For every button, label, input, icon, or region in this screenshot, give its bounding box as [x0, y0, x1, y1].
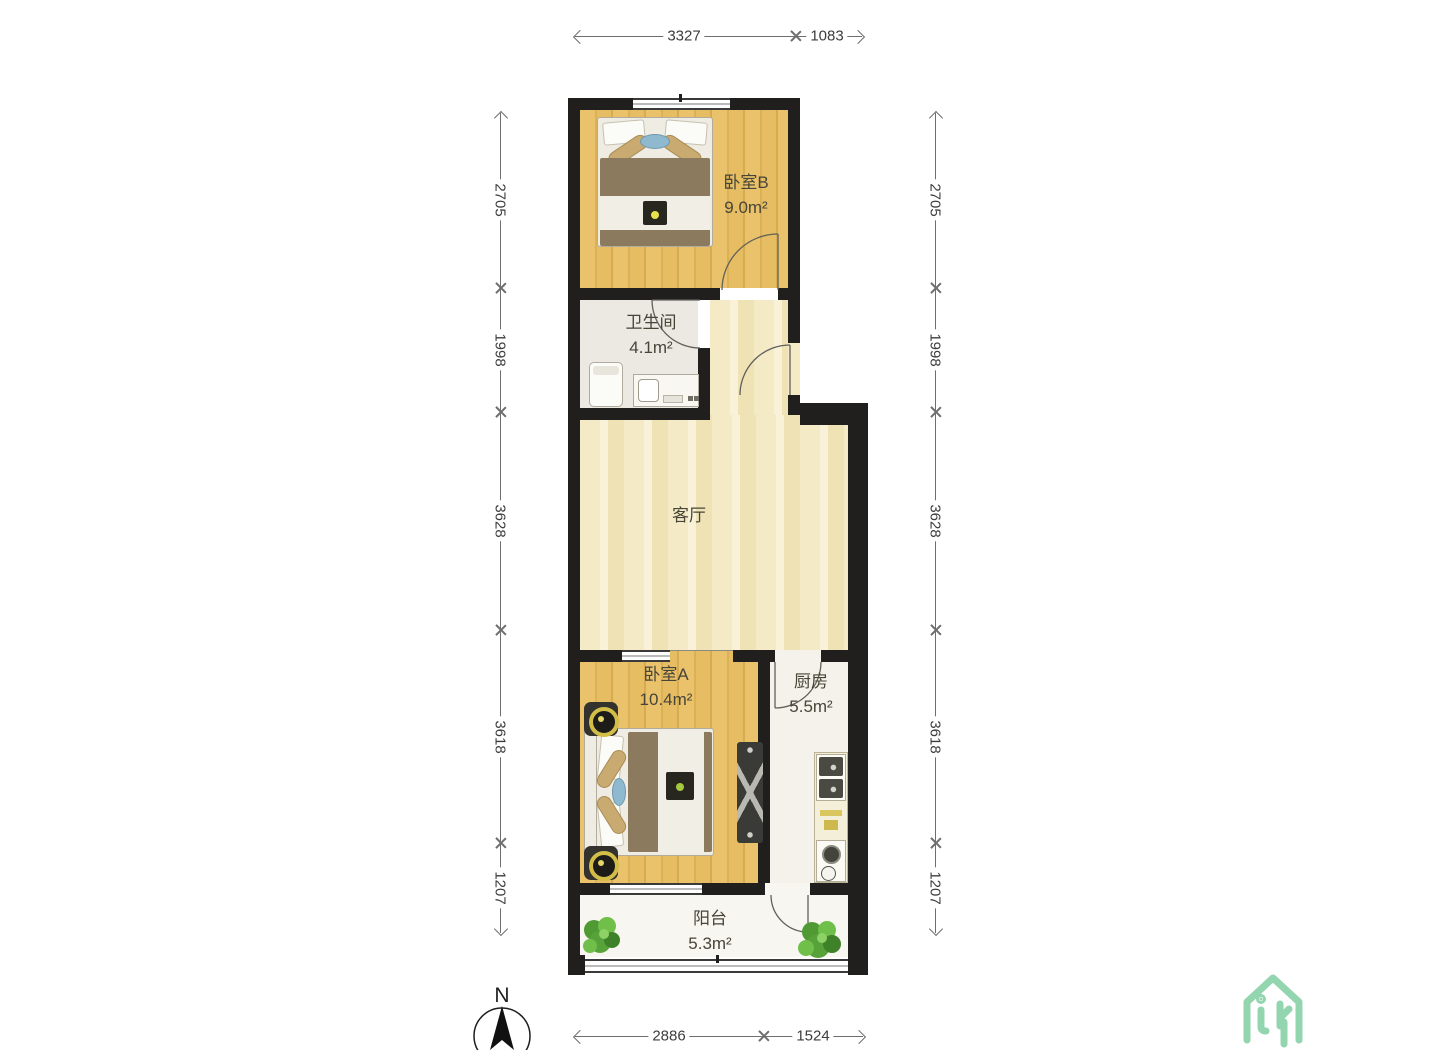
balcony-door-gap-floor — [765, 883, 810, 895]
corner-lamp — [584, 846, 618, 880]
dimension-value: 3628 — [927, 500, 944, 541]
kitchen-label: 厨房 5.5m² — [789, 669, 832, 719]
arrow-icon — [929, 111, 943, 125]
wall — [702, 883, 765, 895]
arrow-icon — [573, 30, 587, 44]
arrow-icon — [929, 922, 943, 936]
wall — [778, 288, 800, 300]
dimension-tick — [493, 405, 507, 419]
wall — [568, 883, 610, 895]
room-area: 5.5m² — [789, 694, 832, 719]
room-area: 5.3m² — [688, 931, 731, 956]
bedroom-b-label: 卧室B 9.0m² — [723, 170, 768, 220]
dimension-tick — [788, 29, 802, 43]
radiator — [737, 742, 763, 843]
dimension-value: 3327 — [663, 28, 704, 45]
dimension-tick — [493, 623, 507, 637]
dimension-value: 3628 — [492, 500, 509, 541]
arrow-icon — [851, 30, 865, 44]
entry-door-gap-floor — [788, 343, 800, 395]
dimension-value: 1207 — [927, 867, 944, 908]
dimension-tick — [928, 405, 942, 419]
vanity-item — [663, 395, 683, 403]
lamp-ring — [589, 851, 619, 881]
lamp-dot — [598, 860, 604, 866]
wall — [568, 288, 720, 300]
round-cushion — [612, 778, 626, 806]
brand-logo-icon — [1247, 978, 1299, 1044]
wall — [568, 408, 710, 420]
dimension-tick — [928, 281, 942, 295]
arrow-icon — [573, 1030, 587, 1044]
arrow-icon — [852, 1030, 866, 1044]
room-name: 厨房 — [789, 669, 832, 694]
dimension-value: 2886 — [648, 1028, 689, 1045]
round-cushion — [640, 134, 670, 149]
dimension-value: 3618 — [492, 716, 509, 757]
living-room-floor — [580, 415, 848, 650]
counter-item — [824, 820, 838, 830]
dimension-tick — [493, 836, 507, 850]
wall — [568, 98, 580, 975]
floor-plan-page: { "rooms": { "bedroom_b": {"name": "卧室B"… — [0, 0, 1440, 1050]
room-name: 阳台 — [688, 906, 731, 931]
kitchen-dial — [821, 866, 836, 881]
kitchen-sink-basin — [822, 845, 841, 864]
dimension-tick — [493, 281, 507, 295]
tray-dot — [676, 783, 684, 791]
counter-item — [820, 810, 842, 816]
dimension-value: 1524 — [792, 1028, 833, 1045]
tray-dot — [651, 211, 659, 219]
dimension-value: 2705 — [927, 179, 944, 220]
room-name: 卧室A — [640, 662, 693, 687]
room-area: 9.0m² — [723, 195, 768, 220]
dimension-value: 1207 — [492, 867, 509, 908]
floor-plan-canvas: 卧室B 9.0m² 卫生间 4.1m² 客厅 卧室A 10.4m² 厨房 5.5… — [0, 0, 1440, 1050]
stove-burner — [819, 757, 843, 776]
wall — [788, 395, 800, 415]
wall — [568, 650, 622, 662]
room-name: 客厅 — [672, 503, 706, 528]
window-tick — [679, 94, 682, 102]
living-room-label: 客厅 — [672, 503, 706, 528]
wall — [733, 650, 775, 662]
bathroom-sink — [638, 379, 659, 402]
dimension-value: 1998 — [927, 329, 944, 370]
compass-needle — [490, 1006, 514, 1050]
room-name: 卧室B — [723, 170, 768, 195]
wall — [568, 955, 585, 975]
dimension-value: 2705 — [492, 179, 509, 220]
bathroom-label: 卫生间 4.1m² — [626, 310, 677, 360]
bedroom-a-balcony-window — [610, 883, 702, 895]
dimension-value: 3618 — [927, 716, 944, 757]
room-name: 卫生间 — [626, 310, 677, 335]
washing-machine-panel — [593, 366, 619, 375]
faucet-dot — [694, 396, 699, 401]
dimension-tick — [756, 1029, 770, 1043]
dimension-tick — [928, 623, 942, 637]
lamp-dot — [598, 716, 604, 722]
balcony-label: 阳台 5.3m² — [688, 906, 731, 956]
wall — [810, 883, 848, 895]
arrow-icon — [494, 922, 508, 936]
hallway-floor — [710, 300, 788, 420]
lamp-ring — [589, 707, 619, 737]
compass-north-label: N — [494, 984, 509, 1008]
stove-burner — [819, 779, 843, 798]
dimension-value: 1998 — [492, 329, 509, 370]
compass-icon — [474, 1006, 530, 1050]
wall — [788, 98, 800, 343]
wall — [821, 650, 848, 662]
window-tick — [716, 955, 719, 963]
bedroom-a-opening — [670, 650, 733, 652]
dimension-value: 1083 — [806, 28, 847, 45]
room-area: 4.1m² — [626, 335, 677, 360]
dimension-tick — [928, 836, 942, 850]
wall — [848, 415, 868, 975]
bedroom-a-label: 卧室A 10.4m² — [640, 662, 693, 712]
bedroom-a-glass-panel — [622, 650, 670, 662]
faucet-dot — [688, 396, 693, 401]
corner-lamp — [584, 702, 618, 736]
arrow-icon — [494, 111, 508, 125]
room-area: 10.4m² — [640, 687, 693, 712]
